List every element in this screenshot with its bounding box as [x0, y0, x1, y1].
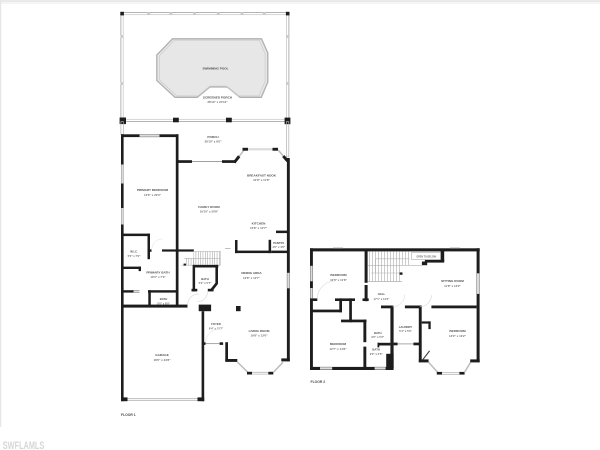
- svg-text:17'1" x 13'2": 17'1" x 13'2": [374, 297, 391, 301]
- svg-text:6'4" x 12'7": 6'4" x 12'7": [209, 327, 224, 331]
- svg-text:PRIMARY BATH: PRIMARY BATH: [146, 271, 170, 275]
- svg-text:FOYER: FOYER: [211, 322, 221, 326]
- svg-text:DINING AREA: DINING AREA: [241, 271, 262, 275]
- svg-text:11'8" x 13'2": 11'8" x 13'2": [444, 284, 461, 288]
- svg-text:BEDROOM: BEDROOM: [449, 329, 466, 333]
- svg-text:12'8" x 12'7": 12'8" x 12'7": [250, 226, 268, 230]
- svg-text:SITTING ROOM: SITTING ROOM: [441, 279, 464, 283]
- svg-text:12'8" x 11'8": 12'8" x 11'8": [253, 178, 270, 182]
- svg-text:FAMILY ROOM: FAMILY ROOM: [198, 205, 220, 209]
- svg-text:PRIMARY BEDROOM: PRIMARY BEDROOM: [137, 188, 169, 192]
- svg-text:19'10" x 20'8": 19'10" x 20'8": [200, 209, 219, 213]
- svg-text:LAUNDRY: LAUNDRY: [399, 325, 413, 329]
- svg-text:5'0" x 8'0": 5'0" x 8'0": [157, 302, 171, 306]
- svg-text:SWIMMING POOL: SWIMMING POOL: [202, 67, 228, 71]
- svg-text:18'0" x 23'8": 18'0" x 23'8": [154, 358, 172, 362]
- svg-text:12'8" x 12'7": 12'8" x 12'7": [243, 276, 261, 280]
- svg-text:5'0" x 5'7": 5'0" x 5'7": [199, 281, 213, 285]
- svg-text:SWFLAMLS: SWFLAMLS: [3, 440, 45, 450]
- svg-text:PANTRY: PANTRY: [273, 241, 284, 245]
- svg-text:12'7" x 14'8": 12'7" x 14'8": [330, 347, 348, 351]
- svg-text:12'6" x 20'3": 12'6" x 20'3": [144, 193, 162, 197]
- svg-text:PORCH: PORCH: [207, 135, 219, 139]
- svg-text:5'0" x 7'0": 5'0" x 7'0": [128, 254, 142, 258]
- svg-text:9'0" x 5'6": 9'0" x 5'6": [370, 352, 384, 356]
- svg-text:KITCHEN: KITCHEN: [252, 222, 267, 226]
- svg-text:4'0" x 4'0": 4'0" x 4'0": [272, 245, 286, 249]
- svg-text:GARAGE: GARAGE: [155, 353, 169, 357]
- svg-text:FLOOR 2: FLOOR 2: [311, 380, 326, 384]
- svg-text:BATH: BATH: [201, 277, 209, 281]
- svg-text:BEDROOM: BEDROOM: [330, 273, 347, 277]
- svg-text:BATH: BATH: [372, 348, 380, 352]
- svg-text:BATH: BATH: [374, 331, 382, 335]
- svg-text:19'8" x 13'6": 19'8" x 13'6": [251, 333, 269, 337]
- svg-text:BATH: BATH: [160, 297, 168, 301]
- svg-text:38'10" x 8'0": 38'10" x 8'0": [205, 140, 223, 144]
- svg-text:38'10" x 24'10": 38'10" x 24'10": [207, 100, 228, 104]
- svg-text:HALL: HALL: [378, 292, 386, 296]
- svg-text:13'0" x 7'0": 13'0" x 7'0": [150, 275, 166, 279]
- svg-text:5'4" x 5'6": 5'4" x 5'6": [399, 329, 413, 333]
- svg-text:LIVING ROOM: LIVING ROOM: [249, 329, 270, 333]
- svg-text:9'0" x 5'2": 9'0" x 5'2": [371, 335, 385, 339]
- svg-text:FLOOR 1: FLOOR 1: [121, 413, 136, 417]
- svg-text:W.I.C.: W.I.C.: [130, 250, 138, 254]
- svg-text:SCREENED PORCH: SCREENED PORCH: [203, 96, 233, 100]
- svg-text:OPEN TO BELOW: OPEN TO BELOW: [416, 256, 436, 258]
- svg-text:BREAKFAST NOOK: BREAKFAST NOOK: [247, 174, 277, 178]
- svg-text:13'0" x 13'2": 13'0" x 13'2": [449, 334, 467, 338]
- svg-text:BEDROOM: BEDROOM: [330, 342, 347, 346]
